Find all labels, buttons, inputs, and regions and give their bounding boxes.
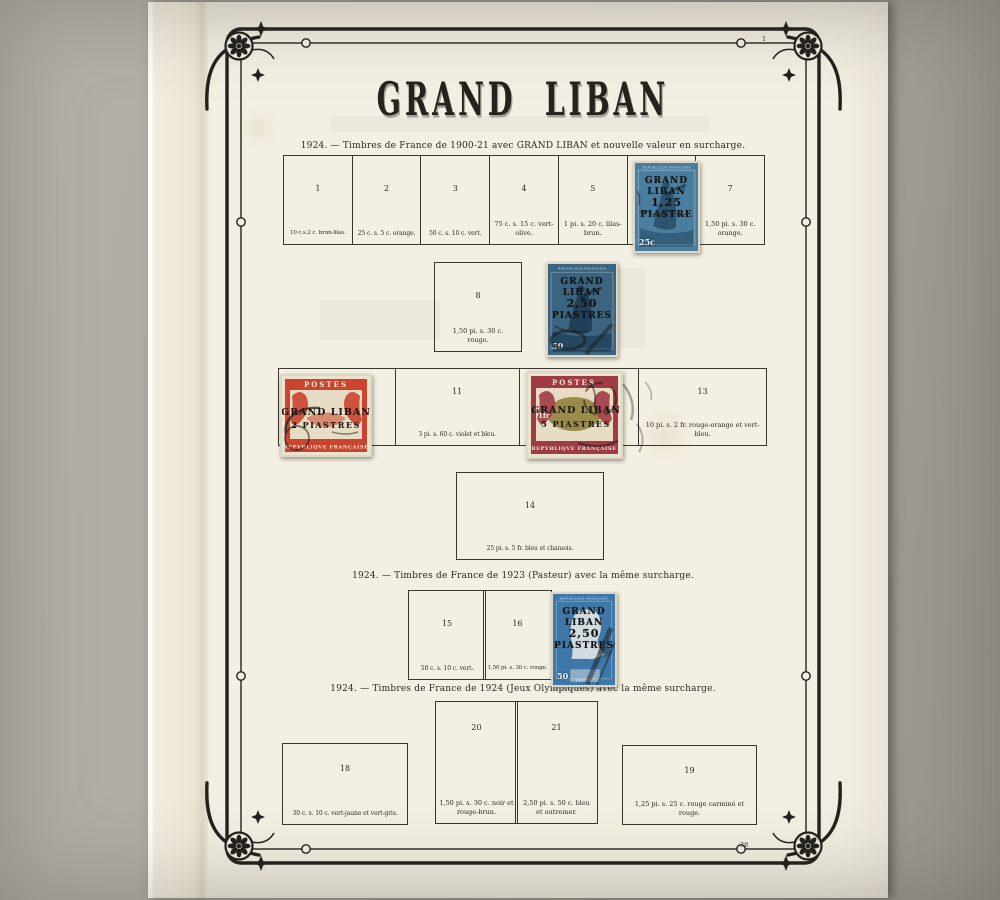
stamp-body: REPUBLIQUE FRANÇAISE GRAND LIBAN 1,25 PI…	[635, 163, 698, 251]
box-caption: 1,50 pi. s. 30 c. rouge.	[447, 327, 509, 345]
stamp-body: REPUBLIQUE FRANÇAISE GRAND LIBAN 2,50 PI…	[553, 594, 615, 685]
box-number: 11	[396, 387, 519, 396]
box-number: 19	[623, 766, 756, 775]
album-page-photo: 1 38 GRAND LIBAN 1924. — Timbres de Fran…	[0, 0, 1000, 900]
page-number-bottom: 38	[740, 841, 748, 849]
stamp-box-21: 21 2,50 pi. s. 50 c. bleu et outremer.	[515, 701, 598, 824]
stamp-semeuse-50c: REPUBLIQUE FRANÇAISE GRAND LIBAN 2,50 PI…	[546, 262, 618, 357]
stamp-box-5: 5 1 pi. s. 20 c. lilas-brun.	[559, 155, 628, 245]
box-caption: 2,50 pi. s. 50 c. bleu et outremer.	[519, 799, 594, 817]
box-caption: 50 c. s. 10 c. vert.	[412, 665, 482, 673]
cancellation-mark	[548, 264, 616, 355]
box-number: 18	[283, 764, 407, 773]
box-number: 1	[284, 184, 352, 193]
box-number: 20	[436, 723, 517, 732]
box-number: 15	[409, 619, 485, 628]
stamp-body: REPUBLIQUE FRANÇAISE GRAND LIBAN 2,50 PI…	[548, 264, 616, 355]
stamp-semeuse-25c: REPUBLIQUE FRANÇAISE GRAND LIBAN 1,25 PI…	[633, 161, 700, 253]
box-caption: 1 pi. s. 20 c. lilas-brun.	[562, 220, 624, 238]
stamp-box-3: 3 50 c. s. 10 c. vert.	[421, 155, 490, 245]
stamp-box-20: 20 1,50 pi. s. 30 c. noir et rouge-brun.	[435, 701, 518, 824]
box-caption: 75 c. s. 15 c. vert-olive.	[493, 220, 555, 238]
box-number: 8	[435, 291, 521, 300]
box-number: 3	[421, 184, 489, 193]
stamp-body: POSTES 1fr REPVBLIQVE FRANÇAISE GRAND LI…	[528, 373, 621, 457]
box-caption: 1,50 pi. s. 30 c. rouge.	[487, 665, 548, 673]
stamp-box-1: 1 10 c.s.2 c. brun-lilas.	[283, 155, 353, 245]
box-caption: 3 pi. s. 60 c. violet et bleu.	[399, 431, 516, 439]
stamp-box-18: 18 30 c. s. 10 c. vert-jaune et vert-gri…	[282, 743, 408, 825]
stamp-body: POSTES REPVBLIQVE FRANÇAISE GRAND LIBAN …	[282, 376, 370, 455]
stamp-box-16: 16 1,50 pi. s. 30 c. rouge.	[483, 590, 552, 680]
cancellation-mark	[635, 163, 698, 251]
box-number: 2	[353, 184, 421, 193]
cancellation-mark	[553, 594, 615, 685]
box-number: 21	[516, 723, 597, 732]
stamp-merson-5p: POSTES 1fr REPVBLIQVE FRANÇAISE GRAND LI…	[526, 371, 623, 459]
stamp-box-4: 4 75 c. s. 15 c. vert-olive.	[490, 155, 559, 245]
box-caption: 10 c.s.2 c. brun-lilas.	[287, 230, 349, 238]
page-title: GRAND LIBAN	[377, 72, 669, 126]
stamp-box-15: 15 50 c. s. 10 c. vert.	[408, 590, 486, 680]
box-caption: 25 c. s. 5 c. orange.	[356, 230, 418, 238]
box-number: 5	[559, 184, 627, 193]
box-caption: 25 pi. s. 5 fr. bleu et chamois.	[460, 545, 600, 553]
overprint-line: 2 PIASTRES	[291, 420, 361, 430]
stamp-merson-2p: POSTES REPVBLIQVE FRANÇAISE GRAND LIBAN …	[280, 374, 372, 457]
stamp-top-text: POSTES	[304, 380, 348, 389]
page-title-wrap: GRAND LIBAN	[227, 72, 819, 126]
box-caption: 1,50 pi. s. 30 c. noir et rouge-brun.	[439, 799, 514, 817]
box-number: 14	[457, 501, 603, 510]
stamp-box-11: 11 3 pi. s. 60 c. violet et bleu.	[396, 368, 520, 446]
overprint-line: GRAND LIBAN	[531, 405, 621, 416]
box-caption: 1,25 pi. s. 25 c. rouge carminé et rouge…	[626, 800, 753, 818]
stamp-bottom-text: REPVBLIQVE FRANÇAISE	[531, 446, 616, 452]
stamp-box-14: 14 25 pi. s. 5 fr. bleu et chamois.	[456, 472, 604, 560]
overprint-line: 5 PIASTRES	[541, 419, 611, 429]
ink-smudge	[615, 376, 667, 456]
section-heading-pasteur: 1924. — Timbres de France de 1923 (Paste…	[227, 571, 819, 581]
stamp-pasteur-50c: REPUBLIQUE FRANÇAISE GRAND LIBAN 2,50 PI…	[551, 592, 617, 687]
stamp-box-8: 8 1,50 pi. s. 30 c. rouge.	[434, 262, 522, 352]
box-number: 16	[484, 619, 551, 628]
box-number: 4	[490, 184, 558, 193]
box-caption: 1,50 pi. s. 30 c. orange.	[699, 220, 761, 238]
box-number: 7	[696, 184, 764, 193]
stamp-box-7: 7 1,50 pi. s. 30 c. orange.	[696, 155, 765, 245]
section-heading-olympiques: 1924. — Timbres de France de 1924 (Jeux …	[227, 684, 819, 694]
section-heading-1900: 1924. — Timbres de France de 1900-21 ave…	[227, 141, 819, 151]
page-number-top: 1	[762, 35, 766, 43]
stamp-box-19: 19 1,25 pi. s. 25 c. rouge carminé et ro…	[622, 745, 757, 825]
box-caption: 30 c. s. 10 c. vert-jaune et vert-gris.	[286, 810, 404, 818]
box-caption: 50 c. s. 10 c. vert.	[424, 230, 486, 238]
stamp-box-2: 2 25 c. s. 5 c. orange.	[353, 155, 422, 245]
